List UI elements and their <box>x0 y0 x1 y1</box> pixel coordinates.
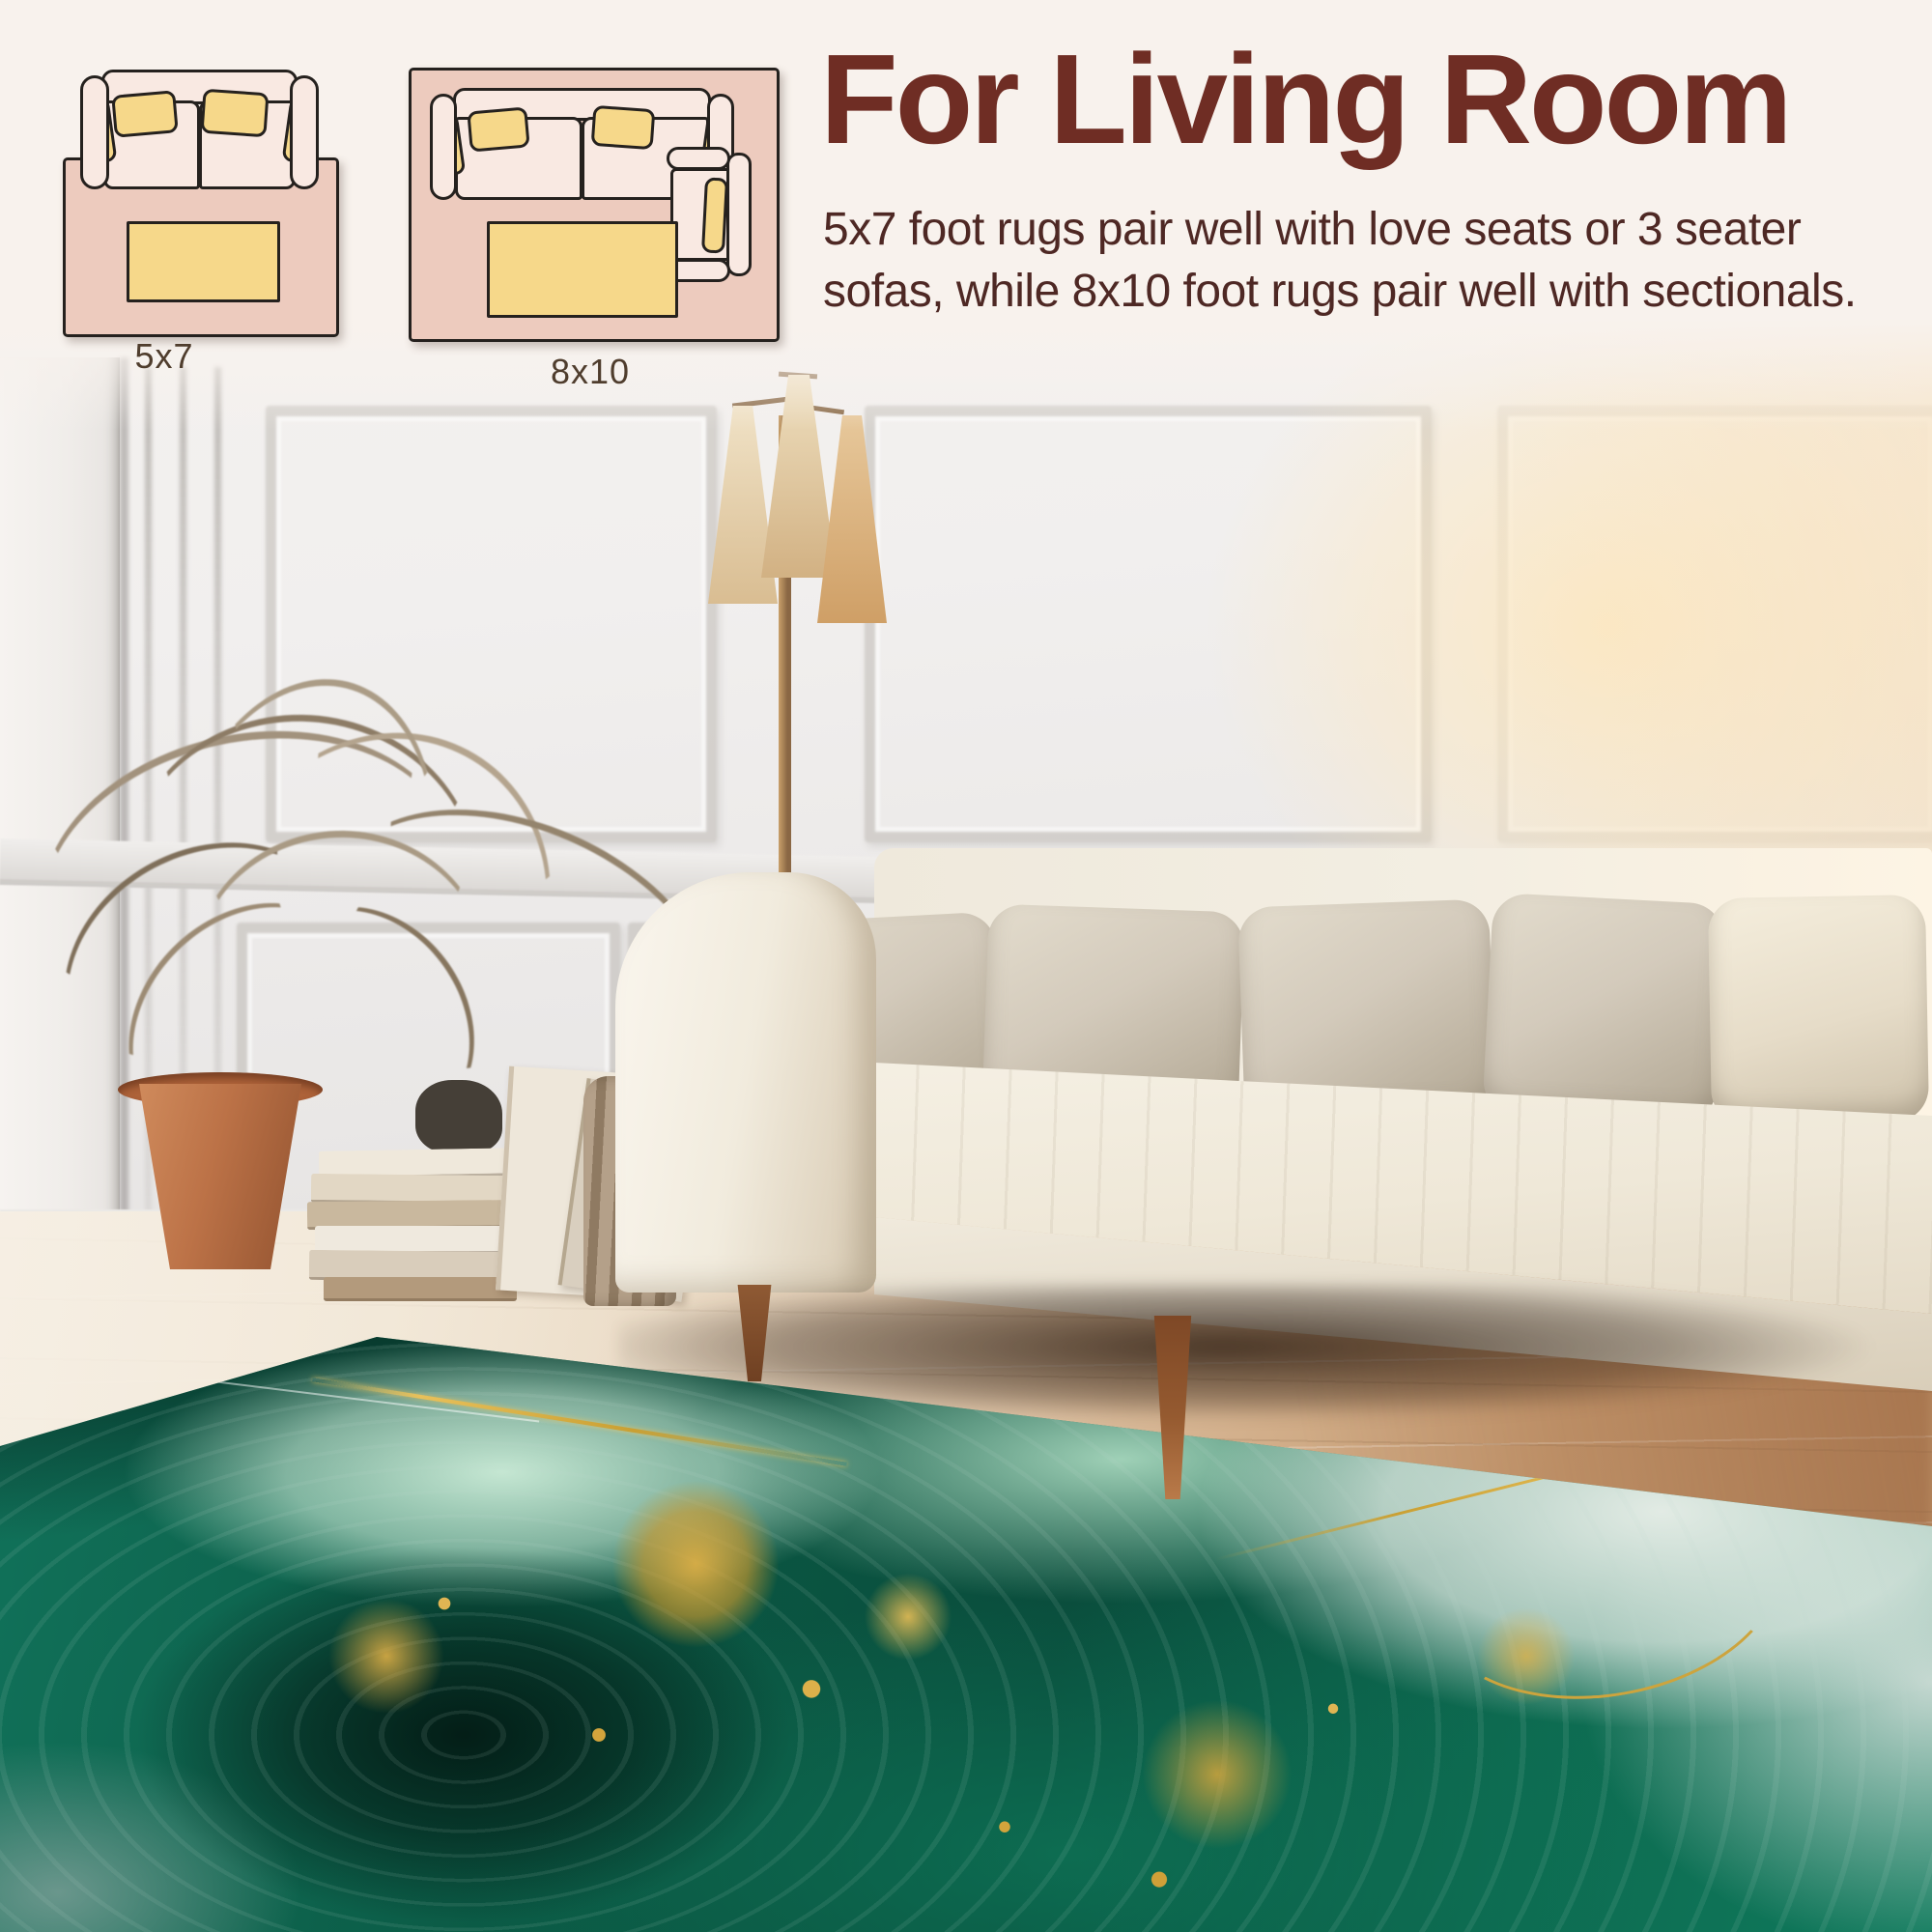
rug-product-image: 5x7 8x10 For Living Room 5x7 foot rugs p… <box>0 0 1932 1932</box>
chair-arm-illu <box>667 147 730 170</box>
wall-panel <box>1497 406 1932 842</box>
sofa-pillow <box>1708 895 1929 1125</box>
page-title: For Living Room <box>820 33 1921 167</box>
size-label-8x10: 8x10 <box>416 352 764 392</box>
sofa-arm-illu <box>430 94 457 200</box>
chair-back-illu <box>726 153 752 276</box>
coffee-table-illu <box>487 221 678 318</box>
description-line-1: 5x7 foot rugs pair well with love seats … <box>823 199 1932 261</box>
wall-panel <box>865 406 1432 842</box>
size-label-5x7: 5x7 <box>29 336 299 377</box>
coffee-table-illu <box>127 221 280 302</box>
description-text: 5x7 foot rugs pair well with love seats … <box>823 199 1932 323</box>
cushion-illu <box>591 105 656 150</box>
description-line-2: sofas, while 8x10 foot rugs pair well wi… <box>823 261 1932 323</box>
loveseat-illustration <box>80 70 319 191</box>
cushion-illu <box>200 89 269 138</box>
cushion-illu <box>111 90 179 138</box>
sofa-armrest <box>615 872 876 1293</box>
sofa-pillow <box>1482 893 1725 1126</box>
stacked-book <box>324 1277 517 1301</box>
decor-sculpture <box>415 1080 502 1153</box>
sofa-arm-illu <box>80 75 109 189</box>
chair-cushion-illu <box>701 177 728 253</box>
cushion-illu <box>467 106 529 152</box>
sofa-arm-illu <box>290 75 319 189</box>
